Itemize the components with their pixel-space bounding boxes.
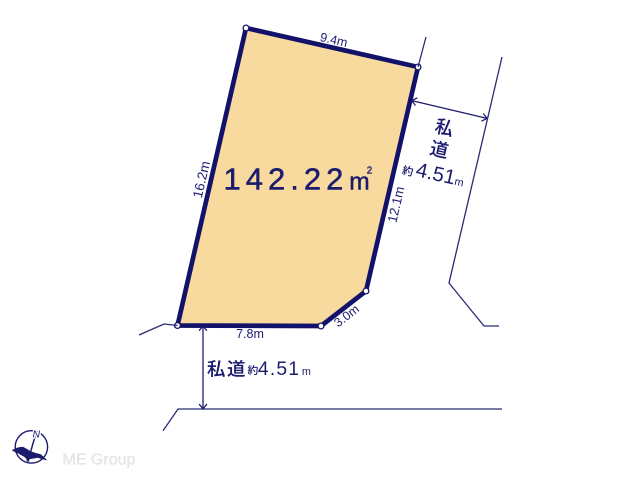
- svg-text:ME Group: ME Group: [63, 452, 136, 469]
- svg-text:142.22: 142.22: [224, 161, 349, 196]
- svg-text:2: 2: [367, 165, 372, 176]
- svg-text:7.8m: 7.8m: [236, 327, 264, 341]
- svg-text:N: N: [33, 428, 41, 440]
- svg-text:4.51m: 4.51m: [414, 158, 467, 191]
- svg-text:4.51m: 4.51m: [258, 359, 311, 380]
